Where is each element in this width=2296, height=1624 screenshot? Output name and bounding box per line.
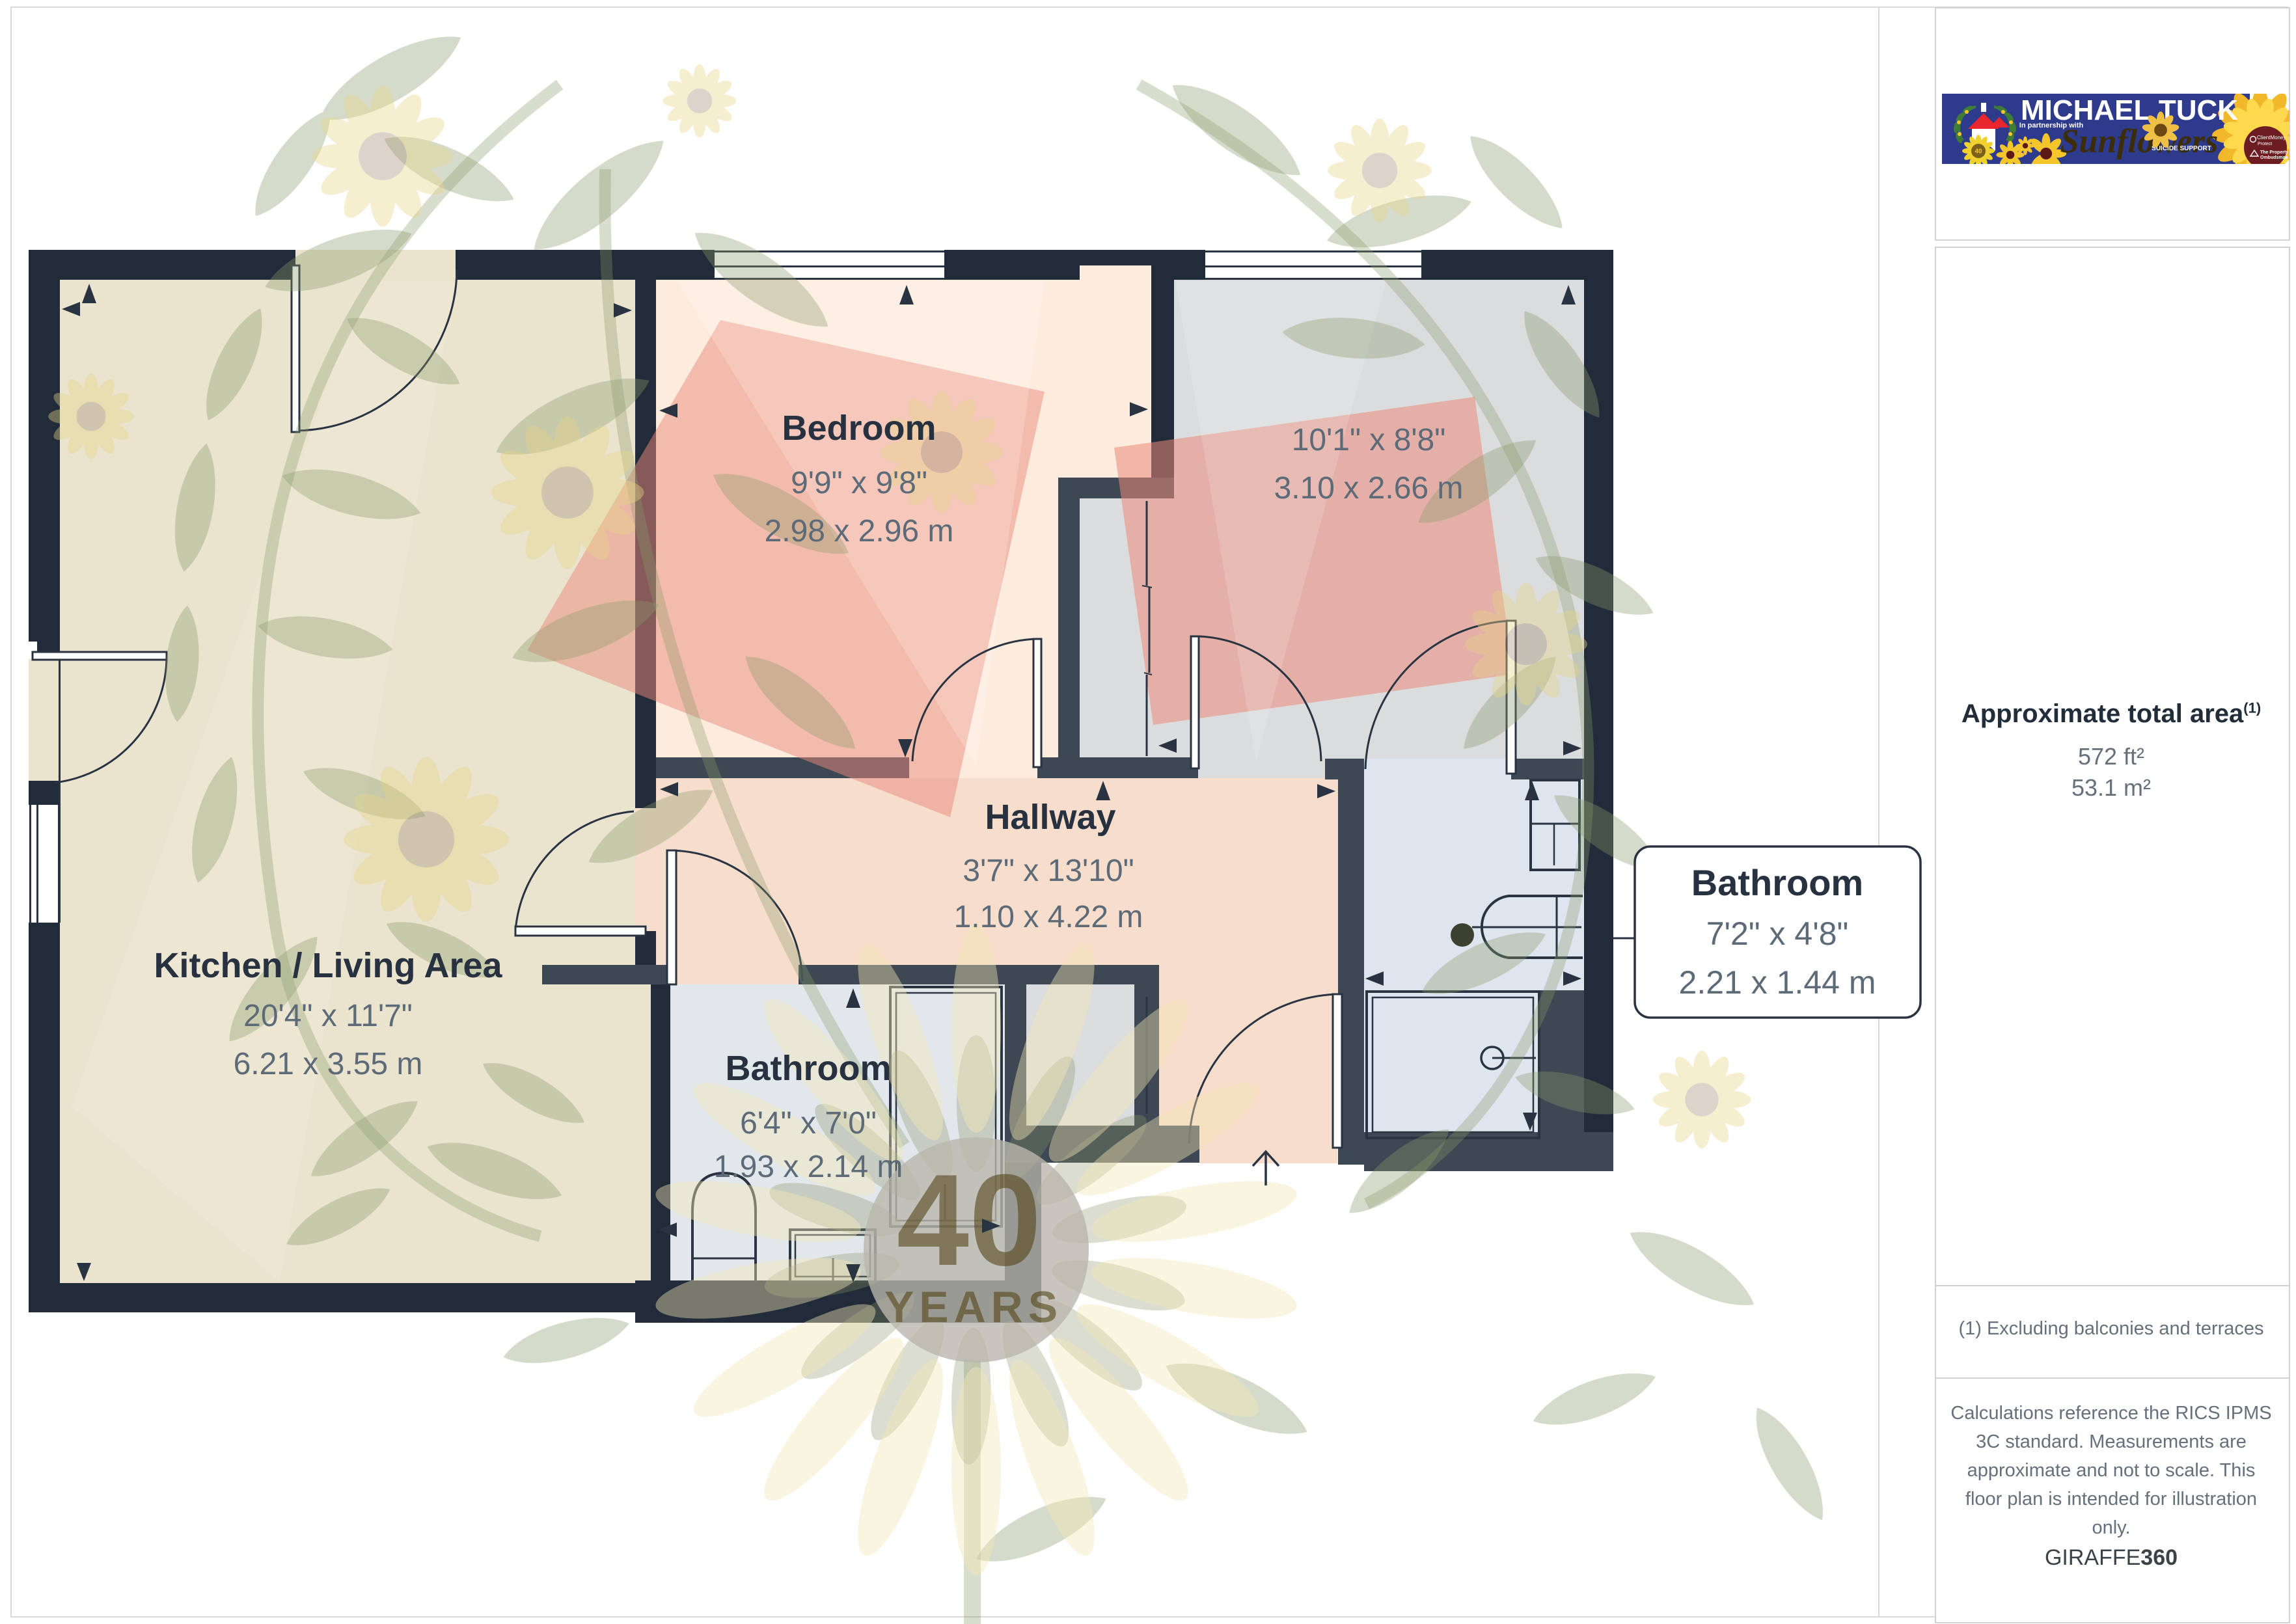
svg-text:Protect: Protect — [2258, 142, 2272, 146]
svg-text:The Property: The Property — [2260, 150, 2288, 155]
svg-text:2.98 x 2.96 m: 2.98 x 2.96 m — [765, 514, 954, 548]
svg-text:9'9" x 9'8": 9'9" x 9'8" — [791, 466, 927, 500]
svg-text:1.10 x 4.22 m: 1.10 x 4.22 m — [954, 900, 1143, 934]
svg-text:6.21 x 3.55 m: 6.21 x 3.55 m — [234, 1047, 423, 1081]
svg-text:Hallway: Hallway — [985, 798, 1115, 837]
svg-text:Ombudsman: Ombudsman — [2260, 156, 2288, 160]
svg-text:YEARS: YEARS — [884, 1282, 1063, 1332]
svg-text:6'4" x 7'0": 6'4" x 7'0" — [740, 1106, 877, 1141]
svg-text:Kitchen / Living Area: Kitchen / Living Area — [154, 946, 502, 985]
svg-text:Bathroom: Bathroom — [726, 1049, 892, 1088]
svg-text:Bedroom: Bedroom — [782, 409, 936, 448]
svg-text:40: 40 — [897, 1148, 1041, 1293]
svg-text:Bathroom: Bathroom — [1691, 862, 1863, 903]
svg-text:3.10 x 2.66 m: 3.10 x 2.66 m — [1274, 471, 1464, 506]
svg-text:3'7" x 13'10": 3'7" x 13'10" — [963, 854, 1134, 888]
svg-text:1.93 x 2.14 m: 1.93 x 2.14 m — [714, 1150, 903, 1184]
svg-text:7'2" x 4'8": 7'2" x 4'8" — [1706, 915, 1849, 952]
svg-text:SUICIDE SUPPORT: SUICIDE SUPPORT — [2152, 145, 2211, 152]
svg-text:ClientMoney: ClientMoney — [2257, 135, 2286, 141]
svg-text:Sunflowers: Sunflowers — [2060, 123, 2219, 160]
svg-text:2.21 x 1.44 m: 2.21 x 1.44 m — [1679, 964, 1876, 1001]
svg-text:20'4" x 11'7": 20'4" x 11'7" — [243, 999, 413, 1033]
svg-text:40: 40 — [1975, 148, 1982, 156]
svg-text:10'1" x 8'8": 10'1" x 8'8" — [1292, 423, 1446, 457]
